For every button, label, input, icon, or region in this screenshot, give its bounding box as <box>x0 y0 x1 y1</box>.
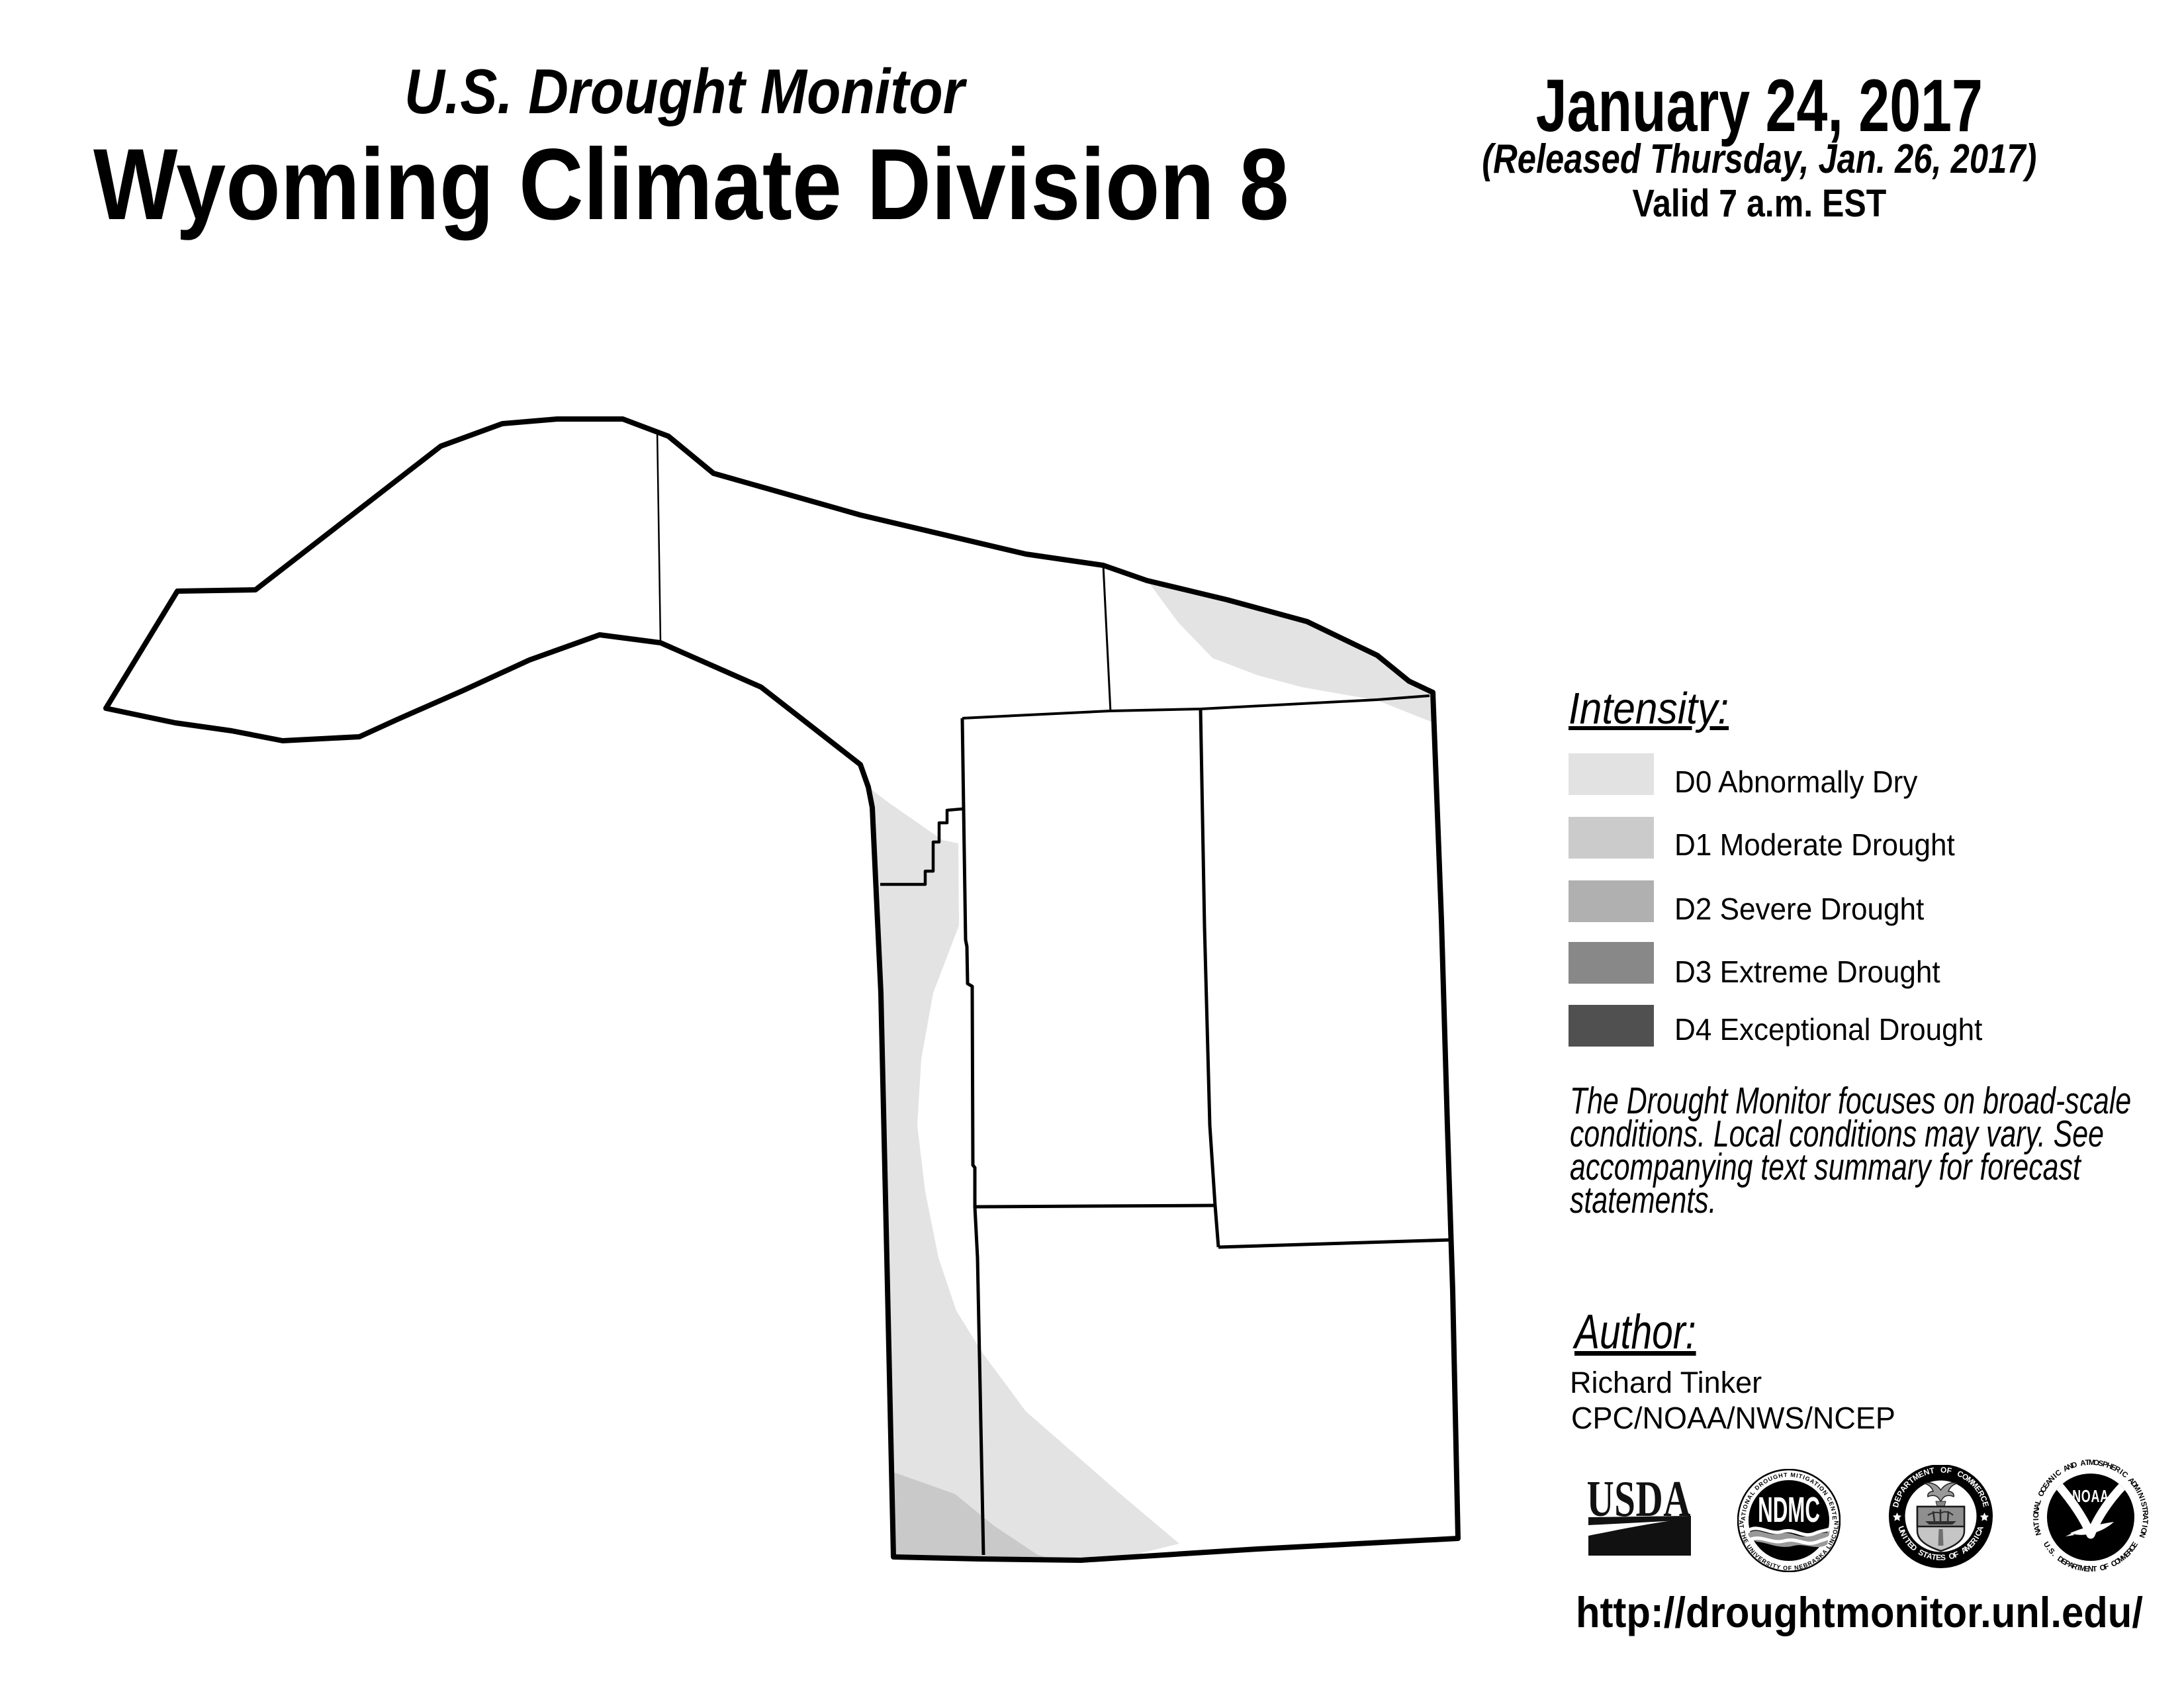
svg-text:NOAA: NOAA <box>2072 1487 2109 1506</box>
svg-text:T: T <box>2140 1519 2149 1524</box>
svg-text:S: S <box>1940 1553 1946 1562</box>
svg-text:T: T <box>2032 1521 2041 1526</box>
svg-text:NDMC: NDMC <box>1758 1490 1820 1530</box>
svg-text:T: T <box>2092 1566 2097 1574</box>
